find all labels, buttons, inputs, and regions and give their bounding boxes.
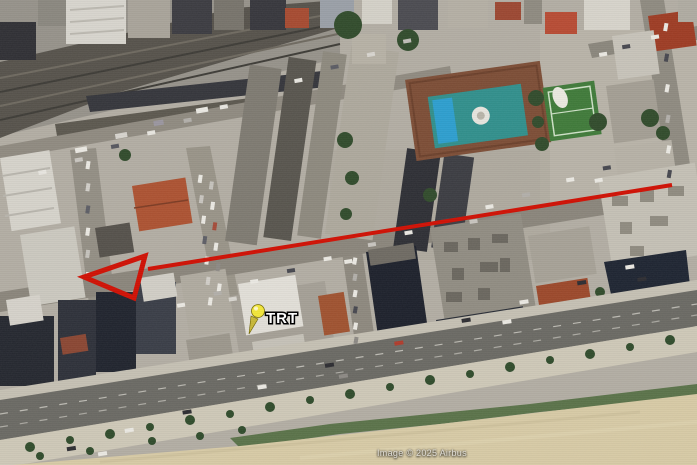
image-grain bbox=[0, 0, 697, 465]
satellite-map[interactable]: TRT Image © 2025 Airbus bbox=[0, 0, 697, 465]
pushpin-head-icon[interactable] bbox=[252, 305, 265, 318]
pushpin-highlight bbox=[254, 307, 258, 311]
satellite-imagery[interactable]: TRT bbox=[0, 0, 697, 465]
placemark-label[interactable]: TRT bbox=[266, 310, 298, 327]
